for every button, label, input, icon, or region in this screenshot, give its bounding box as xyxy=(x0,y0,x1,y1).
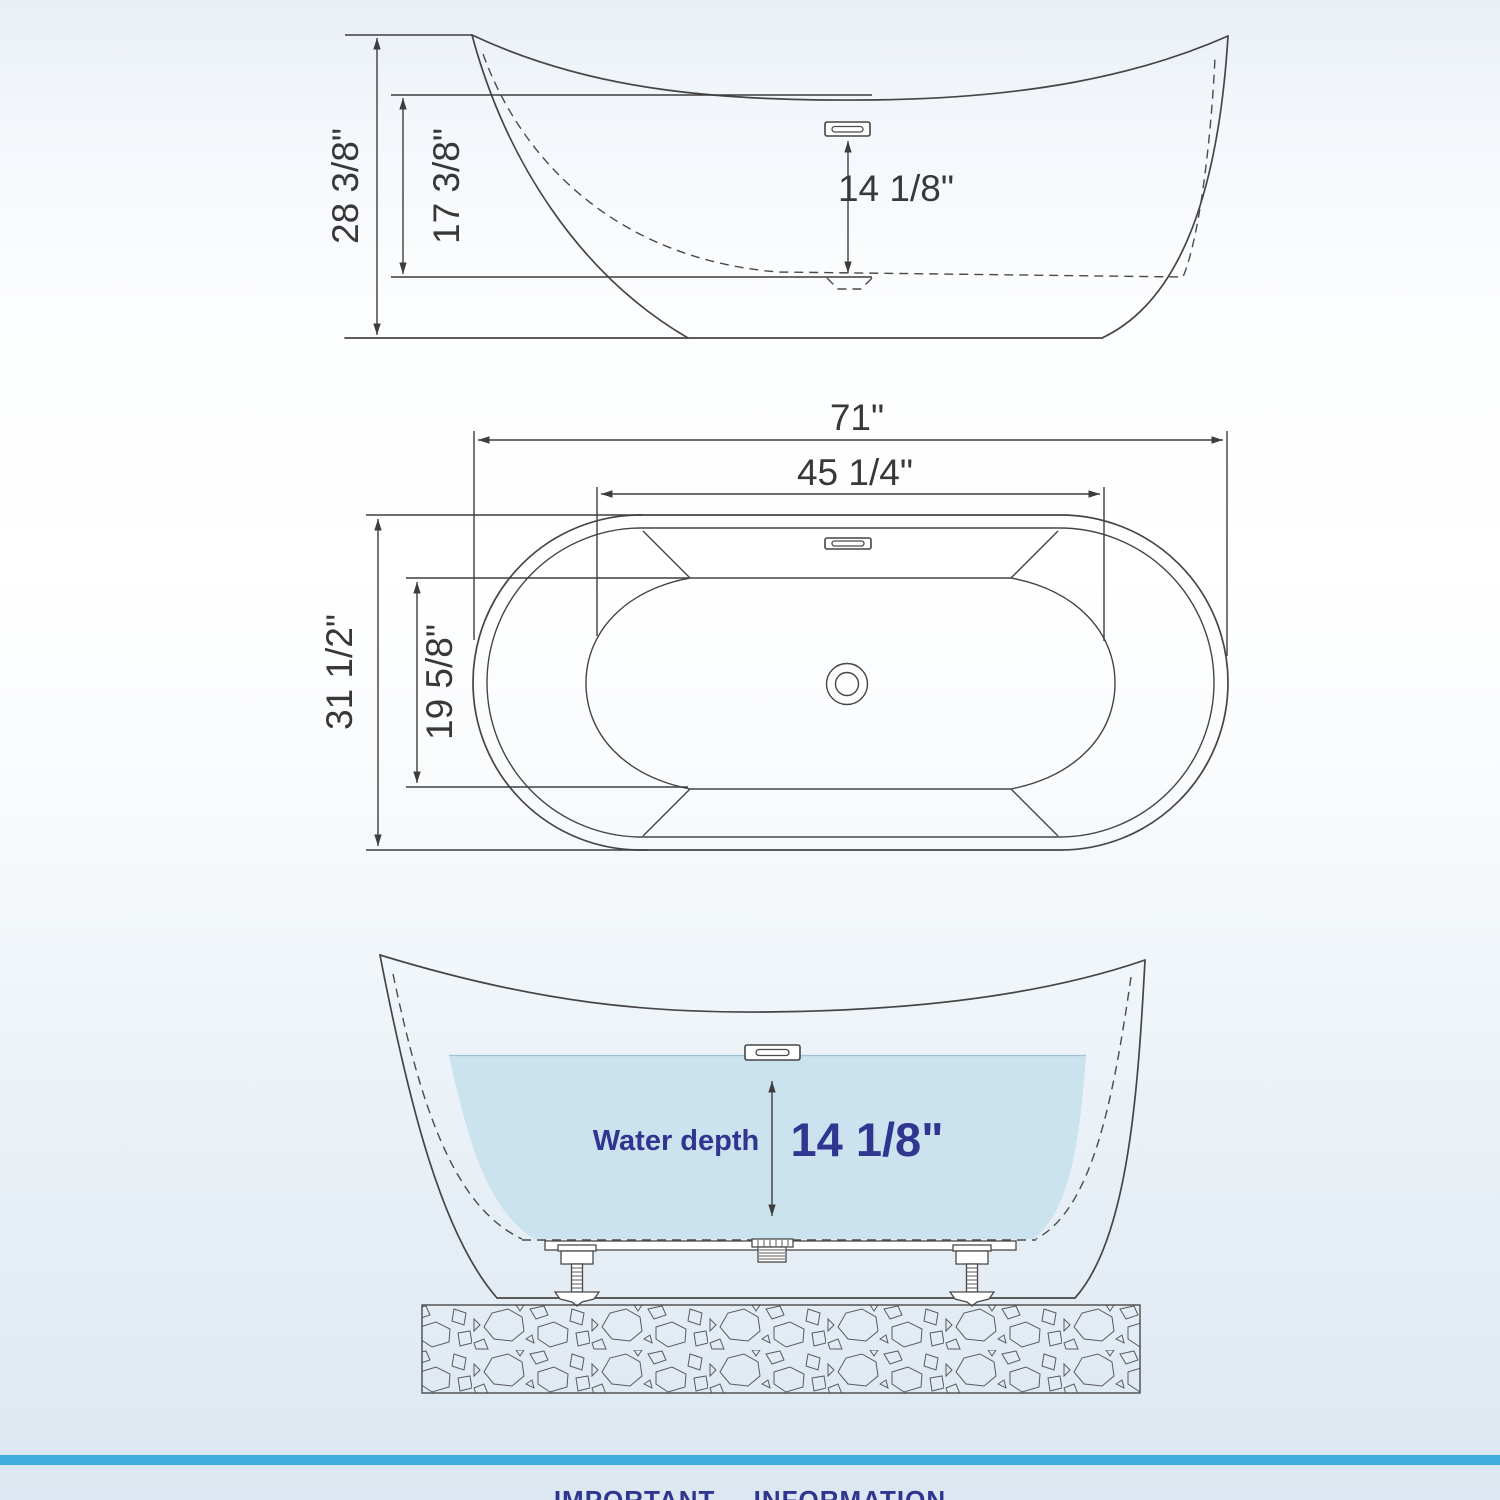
drain-icon-top xyxy=(827,664,868,705)
overflow-icon xyxy=(825,122,870,136)
overall-width-dimension: 31 1/2" xyxy=(319,515,648,850)
adjustable-foot-right xyxy=(950,1245,994,1306)
drain-recess-dashed xyxy=(827,278,872,289)
accent-divider-bar xyxy=(0,1455,1500,1465)
adjustable-foot-left xyxy=(555,1245,599,1306)
overflow-icon-top xyxy=(825,538,871,549)
top-view-tub-outline xyxy=(473,515,1228,850)
overall-width-label: 31 1/2" xyxy=(319,614,360,730)
floor-slab xyxy=(422,1305,1140,1393)
spec-sheet-page: 14 1/8" 28 3/8" 17 3/8" xyxy=(0,0,1500,1500)
overflow-depth-label: 14 1/8" xyxy=(838,168,954,209)
side-view-tub-outline xyxy=(345,35,1228,338)
basin-width-label: 19 5/8" xyxy=(419,624,460,740)
top-view-figure: 71" 45 1/4" 31 1/2" 19 5/8" xyxy=(319,397,1228,850)
basin-width-dimension: 19 5/8" xyxy=(406,578,688,787)
water-depth-label: Water depth xyxy=(593,1125,759,1157)
overflow-icon-section xyxy=(745,1045,800,1060)
section-view-figure: Water depth 14 1/8" xyxy=(380,955,1145,1393)
rim-height-label: 17 3/8" xyxy=(426,128,467,244)
water-depth-value: 14 1/8" xyxy=(791,1113,944,1166)
rim-height-dimension: 17 3/8" xyxy=(391,95,872,277)
overall-length-label: 71" xyxy=(830,397,884,438)
bathtub-dimension-diagram: 14 1/8" 28 3/8" 17 3/8" xyxy=(0,0,1500,1500)
overall-length-dimension: 71" xyxy=(474,397,1227,656)
important-information-heading: IMPORTANT INFORMATION xyxy=(0,1487,1500,1500)
side-view-figure: 14 1/8" 28 3/8" 17 3/8" xyxy=(325,35,1228,338)
basin-length-label: 45 1/4" xyxy=(797,452,913,493)
overall-height-label: 28 3/8" xyxy=(325,128,366,244)
water-fill xyxy=(449,1056,1086,1239)
